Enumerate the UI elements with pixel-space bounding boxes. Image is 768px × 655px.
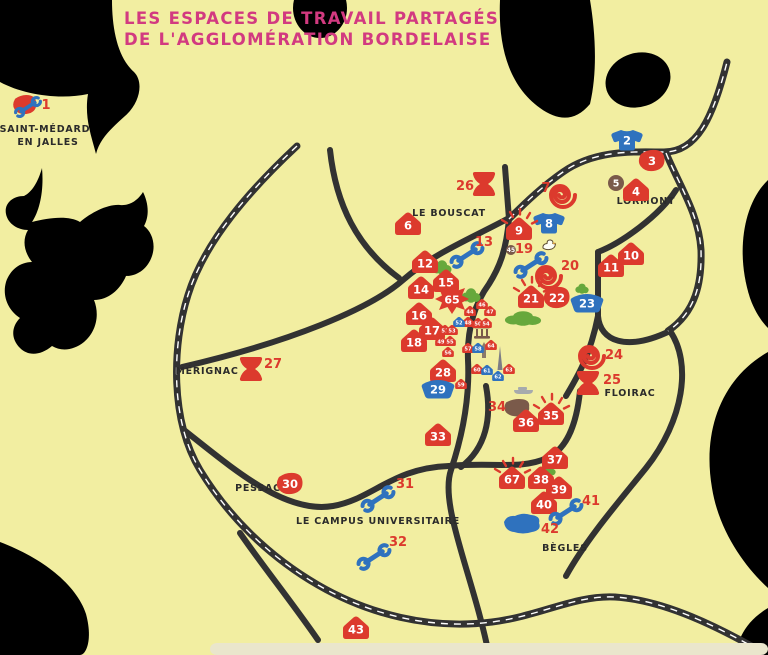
- place-label: EN JALLES: [17, 137, 78, 148]
- marker-number-label: 13: [475, 235, 493, 250]
- marker-number: 46: [478, 302, 486, 308]
- marker-number: 48: [464, 320, 472, 326]
- marker-number: 59: [457, 382, 465, 388]
- marker-number: 35: [543, 409, 559, 423]
- marker-22[interactable]: 22: [544, 287, 570, 308]
- marker-number-label: 42: [541, 522, 559, 537]
- marker-number: 45: [507, 248, 515, 254]
- place-label: BÈGLES: [542, 542, 588, 554]
- marker-number-label: 31: [396, 477, 414, 492]
- marker-number-label: 24: [605, 348, 623, 363]
- marker-number: 43: [348, 623, 364, 637]
- marker-number: 64: [487, 343, 495, 349]
- marker-number: 47: [486, 309, 494, 315]
- marker-number: 2: [623, 134, 631, 148]
- map-title-line2: DE L'AGGLOMÉRATION BORDELAISE: [124, 29, 499, 50]
- marker-number: 33: [430, 430, 446, 444]
- marker-number: 44: [466, 309, 474, 315]
- marker-number: 49: [437, 339, 445, 345]
- map-title-line1: LES ESPACES DE TRAVAIL PARTAGÉS: [124, 8, 499, 29]
- place-label: LE CAMPUS UNIVERSITAIRE: [296, 516, 460, 527]
- marker-number-label: 1: [41, 98, 50, 113]
- marker-number-label: 26: [456, 179, 474, 194]
- place-label: SAINT-MÉDARD: [0, 123, 90, 135]
- marker-number: 63: [505, 367, 513, 373]
- marker-42[interactable]: [504, 514, 540, 534]
- marker-number: 30: [282, 477, 298, 491]
- marker-number: 56: [444, 350, 452, 356]
- marker-number: 17: [424, 324, 440, 338]
- marker-number: 57: [464, 346, 472, 352]
- marker-number: 3: [648, 154, 656, 168]
- marker-29[interactable]: 29: [422, 380, 455, 399]
- place-label: LE BOUSCAT: [412, 208, 486, 219]
- bordeaux-map: SAINT-MÉDARDEN JALLESLE BOUSCATLORMONTMÉ…: [0, 0, 768, 655]
- place-label: MÉRIGNAC: [175, 365, 238, 377]
- marker-number: 54: [482, 321, 490, 327]
- marker-number-label: 34: [488, 400, 506, 415]
- marker-number: 65: [444, 294, 459, 307]
- marker-number: 12: [417, 257, 433, 271]
- marker-65[interactable]: 65: [435, 284, 469, 314]
- marker-number: 14: [413, 283, 429, 297]
- marker-number: 18: [406, 336, 422, 350]
- marker-number-label: 7: [541, 181, 550, 196]
- marker-3[interactable]: 3: [639, 150, 665, 171]
- road-north-stub: [505, 167, 509, 219]
- marker-45[interactable]: 45: [506, 245, 516, 255]
- place-label: PESSAC: [235, 483, 281, 494]
- place-label: FLOIRAC: [604, 388, 655, 399]
- marker-number-label: 19: [515, 242, 533, 257]
- marker-number: 28: [435, 366, 451, 380]
- marker-number: 55: [446, 339, 454, 345]
- marker-number: 5: [613, 179, 620, 190]
- bottom-strip: [210, 643, 768, 655]
- marker-number: 61: [483, 368, 491, 374]
- map-poster: LES ESPACES DE TRAVAIL PARTAGÉS DE L'AGG…: [0, 0, 768, 655]
- marker-number: 40: [536, 498, 552, 512]
- marker-number-label: 20: [561, 259, 579, 274]
- marker-23[interactable]: 23: [571, 294, 604, 313]
- marker-number: 39: [551, 483, 567, 497]
- marker-number: 62: [494, 374, 502, 380]
- marker-number: 67: [504, 473, 520, 487]
- marker-number: 53: [448, 328, 456, 334]
- marker-number: 4: [632, 185, 640, 199]
- marker-number: 29: [430, 383, 446, 397]
- marker-number-label: 41: [582, 494, 600, 509]
- marker-number: 16: [411, 309, 427, 323]
- marker-number: 21: [523, 292, 539, 306]
- marker-number: 58: [474, 346, 482, 352]
- marker-number: 36: [518, 416, 534, 430]
- marker-number: 22: [549, 291, 565, 305]
- marker-number: 60: [473, 367, 481, 373]
- marker-number: 38: [533, 473, 549, 487]
- marker-number-label: 25: [603, 373, 621, 388]
- marker-number: 11: [603, 261, 619, 275]
- marker-number-label: 32: [389, 535, 407, 550]
- marker-30[interactable]: 30: [277, 473, 303, 494]
- marker-number: 23: [579, 297, 595, 311]
- marker-number: 9: [515, 224, 523, 238]
- map-title: LES ESPACES DE TRAVAIL PARTAGÉS DE L'AGG…: [124, 8, 499, 50]
- marker-number: 10: [623, 249, 639, 263]
- marker-number: 6: [404, 219, 412, 233]
- marker-number-label: 27: [264, 357, 282, 372]
- marker-number: 37: [547, 453, 563, 467]
- marker-number: 8: [545, 217, 553, 231]
- marker-number: 52: [455, 320, 463, 326]
- marker-5[interactable]: 5: [608, 175, 624, 191]
